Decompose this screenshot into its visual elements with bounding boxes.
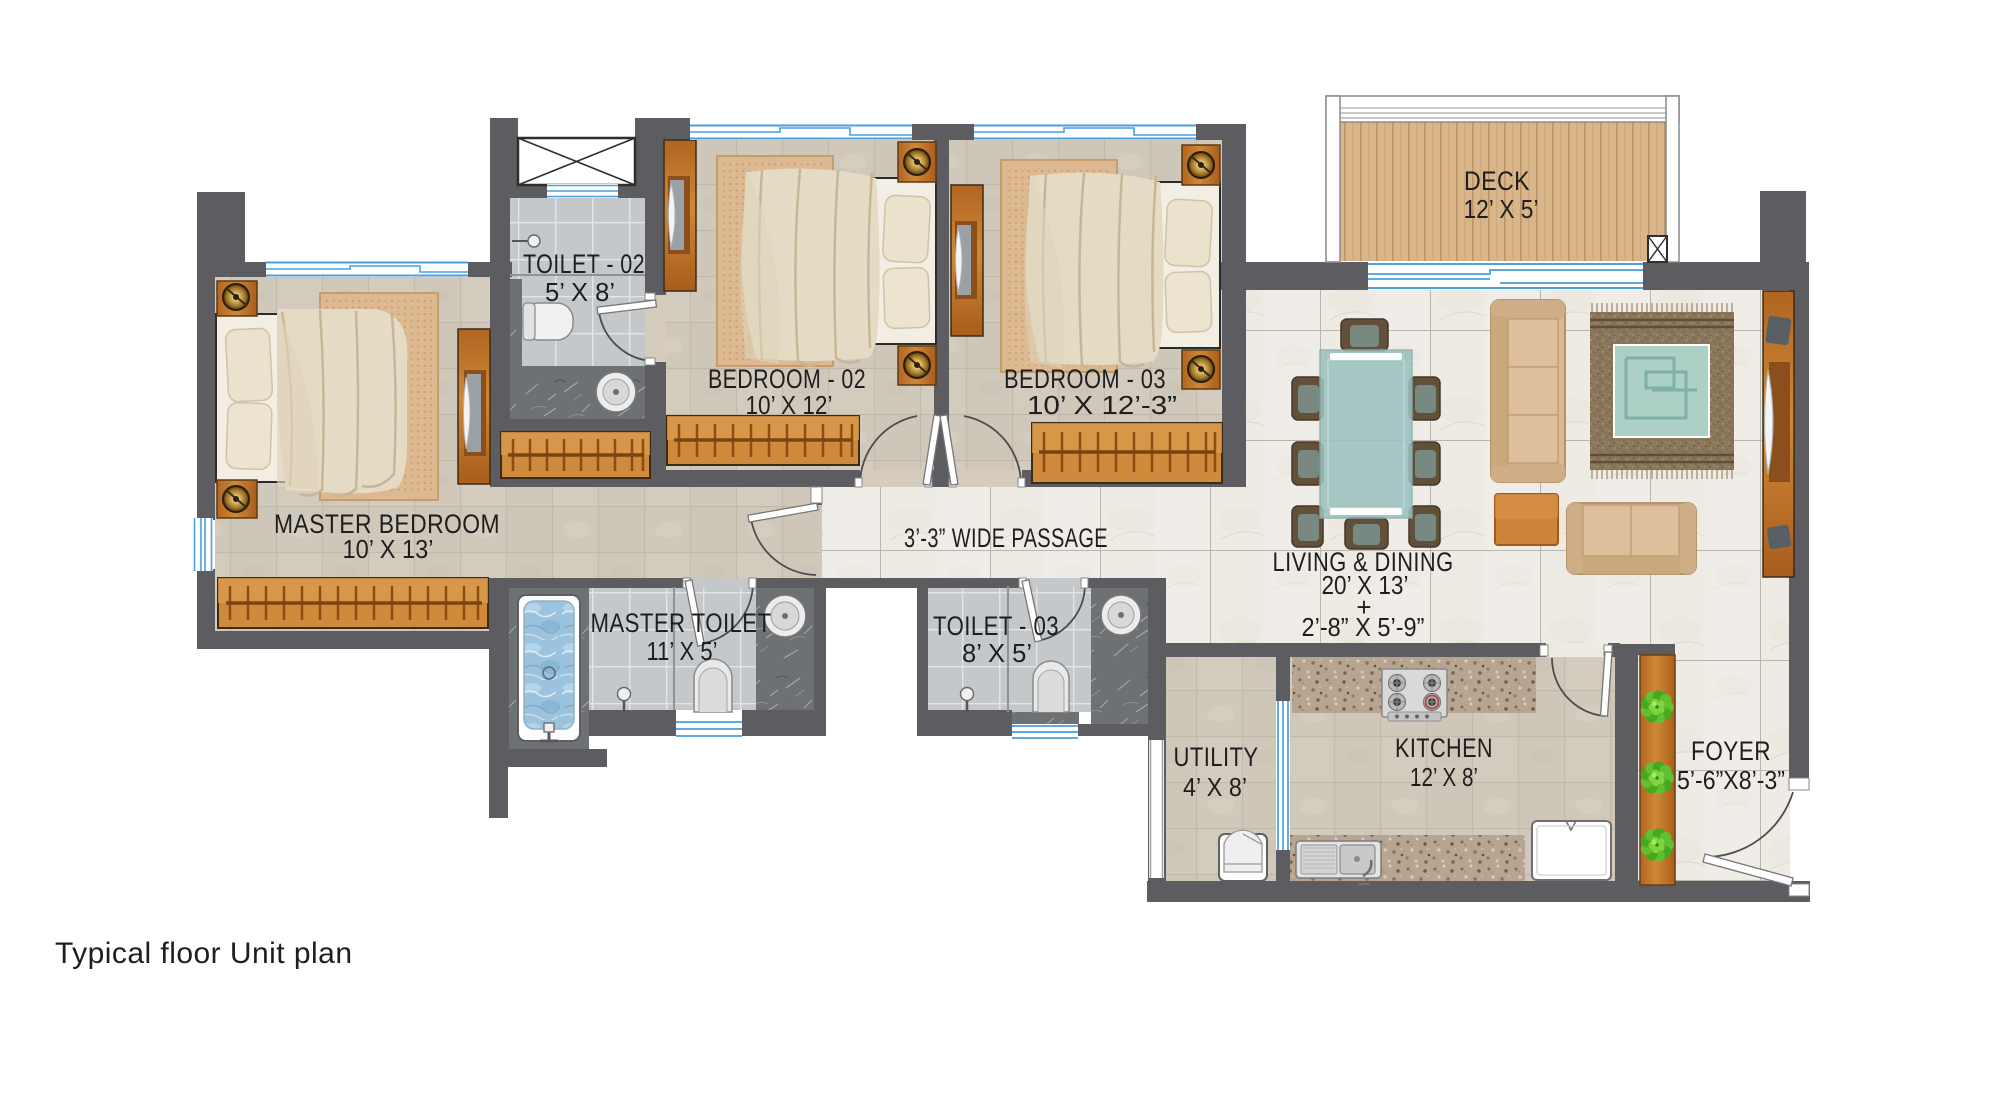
svg-text:TOILET - 02: TOILET - 02 [523, 249, 645, 279]
svg-text:10’ X 12’-3”: 10’ X 12’-3” [1027, 390, 1177, 420]
svg-text:FOYER: FOYER [1691, 736, 1771, 766]
svg-text:10’ X 13’: 10’ X 13’ [343, 534, 434, 564]
svg-text:4’ X 8’: 4’ X 8’ [1183, 772, 1247, 802]
svg-text:MASTER TOILET: MASTER TOILET [591, 608, 772, 638]
svg-text:8’ X 5’: 8’ X 5’ [962, 638, 1032, 668]
svg-text:5’ X 8’: 5’ X 8’ [545, 277, 615, 307]
svg-text:12’ X 8’: 12’ X 8’ [1410, 762, 1478, 792]
svg-text:Typical floor Unit plan: Typical floor Unit plan [55, 937, 352, 970]
svg-text:2’-8” X 5’-9”: 2’-8” X 5’-9” [1302, 612, 1425, 642]
svg-text:TOILET - 03: TOILET - 03 [933, 611, 1059, 641]
svg-text:5’-6”X8’-3”: 5’-6”X8’-3” [1677, 765, 1785, 795]
svg-text:10’ X 12’: 10’ X 12’ [746, 390, 833, 420]
svg-text:UTILITY: UTILITY [1174, 742, 1259, 772]
svg-text:12’ X 5’: 12’ X 5’ [1464, 194, 1539, 224]
svg-text:DECK: DECK [1464, 166, 1530, 196]
svg-text:11’ X 5’: 11’ X 5’ [647, 636, 718, 666]
svg-text:3’-3” WIDE PASSAGE: 3’-3” WIDE PASSAGE [904, 523, 1108, 553]
svg-text:KITCHEN: KITCHEN [1395, 733, 1493, 763]
